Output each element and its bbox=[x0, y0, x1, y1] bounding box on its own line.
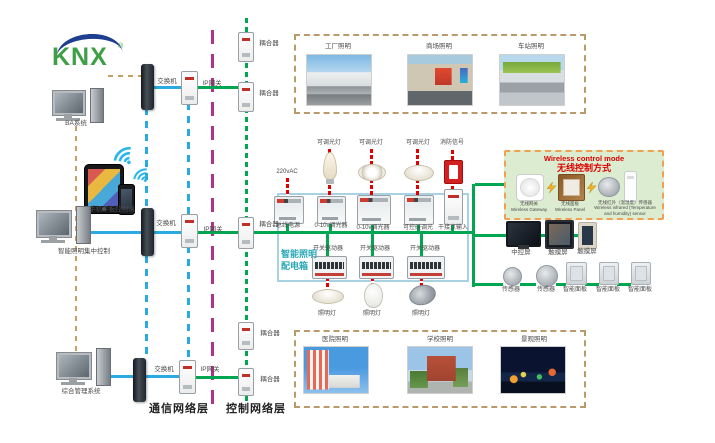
sensor-1 bbox=[503, 267, 522, 286]
monitor-screen bbox=[39, 213, 69, 235]
coupler-5 bbox=[238, 368, 254, 396]
ip-gateway-middle bbox=[181, 214, 198, 248]
network-switch-top bbox=[141, 64, 154, 110]
sensor-link-2 bbox=[556, 283, 566, 286]
label-station-lighting: 车站照明 bbox=[499, 43, 563, 50]
photo-factory-lighting bbox=[306, 54, 372, 106]
monitor bbox=[36, 210, 72, 238]
label-coupler-4: 耦合器 bbox=[256, 330, 284, 337]
label-fire-signal: 消防信号 bbox=[428, 140, 476, 147]
smart-panel-3 bbox=[631, 262, 651, 285]
label-wireless-gateway-en: Wireless Gateway bbox=[507, 207, 551, 213]
label-module-dimmer-2: 0-10v调光器 bbox=[349, 225, 397, 232]
label-hospital-lighting: 医院照明 bbox=[305, 336, 365, 343]
wireless-control-box: Wireless control mode 无线控制方式 无线网关 Wirele… bbox=[504, 150, 664, 220]
label-gateway-top: IP网关 bbox=[198, 80, 226, 87]
wireless-title-zh: 无线控制方式 bbox=[506, 163, 662, 173]
touch-screen-1 bbox=[545, 220, 574, 249]
switch-driver-3 bbox=[407, 256, 445, 279]
network-switch-middle bbox=[141, 208, 154, 256]
label-landscape-lighting: 景观照明 bbox=[504, 336, 564, 343]
label-driver-1: 开关驱动器 bbox=[304, 246, 352, 253]
label-school-lighting: 学校照明 bbox=[410, 336, 470, 343]
knx-system-diagram: KNX ® BA系统 手机平板控制端 智能照明集中控制 综合管理系统 bbox=[0, 0, 715, 443]
lamp-bulb bbox=[364, 283, 383, 308]
fire-alarm-box bbox=[444, 160, 463, 184]
network-switch-bottom bbox=[133, 358, 146, 402]
module-dry-contact bbox=[444, 189, 463, 225]
label-lamp-2: 照明灯 bbox=[348, 311, 396, 318]
label-driver-2: 开关驱动器 bbox=[351, 246, 399, 253]
label-wireless-sensor: 无线红外（温湿度）传感器 Wireless infrared (Temperat… bbox=[590, 200, 660, 216]
label-wireless-sensor-en: Wireless infrared (Temperature and humid… bbox=[590, 205, 660, 216]
label-coupler-5: 耦合器 bbox=[256, 376, 284, 383]
coupler-2 bbox=[238, 82, 254, 112]
lightning-icon bbox=[585, 181, 598, 194]
label-dimmable-lamp-2: 可调光灯 bbox=[347, 140, 395, 147]
label-coupler-1: 耦合器 bbox=[255, 40, 283, 47]
label-lamp-3: 照明灯 bbox=[397, 311, 445, 318]
label-gateway-bottom: IP网关 bbox=[196, 366, 224, 373]
label-touch-screen-2: 触摸屏 bbox=[572, 248, 602, 255]
photo-station-lighting bbox=[499, 54, 565, 106]
label-lamp-1: 照明灯 bbox=[303, 311, 351, 318]
label-wireless-panel-en: Wireless Panel bbox=[551, 207, 589, 213]
label-switch-top: 交换机 bbox=[153, 78, 181, 85]
module-bus-power bbox=[274, 196, 304, 224]
monitor-screen bbox=[59, 355, 89, 377]
photo-mall-lighting bbox=[407, 54, 473, 106]
module-dimmer-1 bbox=[317, 196, 346, 224]
lightning-icon bbox=[545, 181, 558, 194]
wireless-gateway-device bbox=[516, 174, 544, 201]
label-smart-panel-3: 智能面板 bbox=[626, 287, 654, 294]
ip-gateway-top bbox=[181, 71, 198, 105]
knx-branch-wireless bbox=[475, 183, 505, 186]
label-smart-panel-1: 智能面板 bbox=[561, 287, 589, 294]
label-module-bus-power: 总线电源 bbox=[264, 223, 312, 230]
photo-school-lighting bbox=[407, 346, 473, 394]
label-sensor-1: 传感器 bbox=[499, 287, 523, 294]
monitor bbox=[56, 352, 92, 380]
label-mall-lighting: 商场照明 bbox=[407, 43, 471, 50]
label-module-dimmer-1: 0-10v调光器 bbox=[307, 223, 355, 230]
power-line-220v bbox=[286, 178, 289, 196]
label-sensor-2: 传感器 bbox=[534, 287, 558, 294]
label-dimmable-lamp-1: 可调光灯 bbox=[305, 140, 353, 147]
knx-branch-screens bbox=[475, 234, 507, 237]
label-switch-middle: 交换机 bbox=[152, 220, 180, 227]
monitor-base bbox=[61, 382, 85, 385]
label-factory-lighting: 工厂照明 bbox=[306, 43, 370, 50]
label-control-layer: 控制网络层 bbox=[225, 403, 287, 416]
cabinet-title-line2: 配电箱 bbox=[281, 261, 325, 273]
photo-hospital-lighting bbox=[303, 346, 369, 394]
wireless-sensor-round bbox=[598, 177, 620, 197]
sensor-link-3 bbox=[585, 283, 599, 286]
knx-logo: KNX ® bbox=[52, 34, 142, 80]
wireless-sensor-rect bbox=[624, 171, 637, 202]
knx-logo-reg: ® bbox=[118, 43, 123, 50]
smart-panel-1 bbox=[566, 262, 587, 285]
label-module-dry-contact: 干接点输入 bbox=[429, 225, 477, 232]
lan-vertical-2 bbox=[145, 256, 148, 358]
monitor-screen bbox=[55, 93, 83, 113]
label-gateway-middle: IP网关 bbox=[199, 226, 227, 233]
coupler-3 bbox=[238, 217, 254, 249]
lan-vertical-3 bbox=[187, 103, 190, 214]
coupler-1 bbox=[238, 32, 254, 62]
dimmable-candle-lamp bbox=[323, 152, 337, 180]
lamp-ceiling bbox=[312, 289, 344, 304]
sensor-link-1 bbox=[520, 283, 536, 286]
label-central-screen: 中控屏 bbox=[506, 249, 536, 256]
label-mobile-control: 手机平板控制端 bbox=[72, 206, 152, 213]
coupler-4 bbox=[238, 322, 254, 350]
label-management-system: 综合管理系统 bbox=[41, 388, 121, 395]
pc-tower bbox=[90, 88, 104, 123]
label-communication-layer: 通信网络层 bbox=[148, 403, 210, 416]
label-wireless-gateway: 无线网关 Wireless Gateway bbox=[507, 201, 551, 212]
lamp-spotlight bbox=[407, 282, 438, 308]
label-220vac: 220vAC bbox=[270, 169, 304, 176]
dimmable-ceiling-lamp bbox=[404, 165, 434, 181]
touch-screen-2 bbox=[578, 222, 597, 249]
label-ba-system: BA系统 bbox=[48, 120, 104, 127]
knx-branch-sensors bbox=[473, 283, 503, 286]
label-switch-bottom: 交换机 bbox=[150, 366, 178, 373]
sensor-link-4 bbox=[617, 283, 631, 286]
ip-gateway-bottom bbox=[179, 360, 196, 394]
lan-vertical-4 bbox=[187, 246, 190, 360]
wireless-panel-device bbox=[558, 174, 585, 201]
label-driver-3: 开关驱动器 bbox=[401, 246, 449, 253]
label-wireless-panel: 无线面板 Wireless Panel bbox=[551, 201, 589, 212]
dimmable-downlight bbox=[358, 164, 386, 181]
sensor-2 bbox=[536, 265, 558, 287]
module-triac-dimmer bbox=[404, 195, 434, 225]
central-control-screen bbox=[506, 221, 541, 247]
knx-logo-text: KNX bbox=[52, 43, 108, 72]
switch-driver-2 bbox=[359, 256, 394, 279]
photo-landscape-lighting bbox=[500, 346, 566, 394]
pc-tower bbox=[96, 348, 111, 386]
module-dimmer-2 bbox=[357, 195, 391, 225]
pc-management bbox=[56, 348, 110, 388]
lan-vertical-1 bbox=[145, 108, 148, 208]
label-touch-screen-1: 触摸屏 bbox=[543, 249, 573, 256]
lan-horizontal-middle bbox=[84, 231, 184, 234]
lan-horizontal-top bbox=[154, 86, 182, 89]
label-coupler-2: 耦合器 bbox=[255, 90, 283, 97]
label-smart-panel-2: 智能面板 bbox=[594, 287, 622, 294]
monitor-base bbox=[41, 240, 65, 243]
label-central-control: 智能照明集中控制 bbox=[39, 248, 129, 255]
smart-panel-2 bbox=[599, 262, 619, 285]
monitor bbox=[52, 90, 86, 116]
